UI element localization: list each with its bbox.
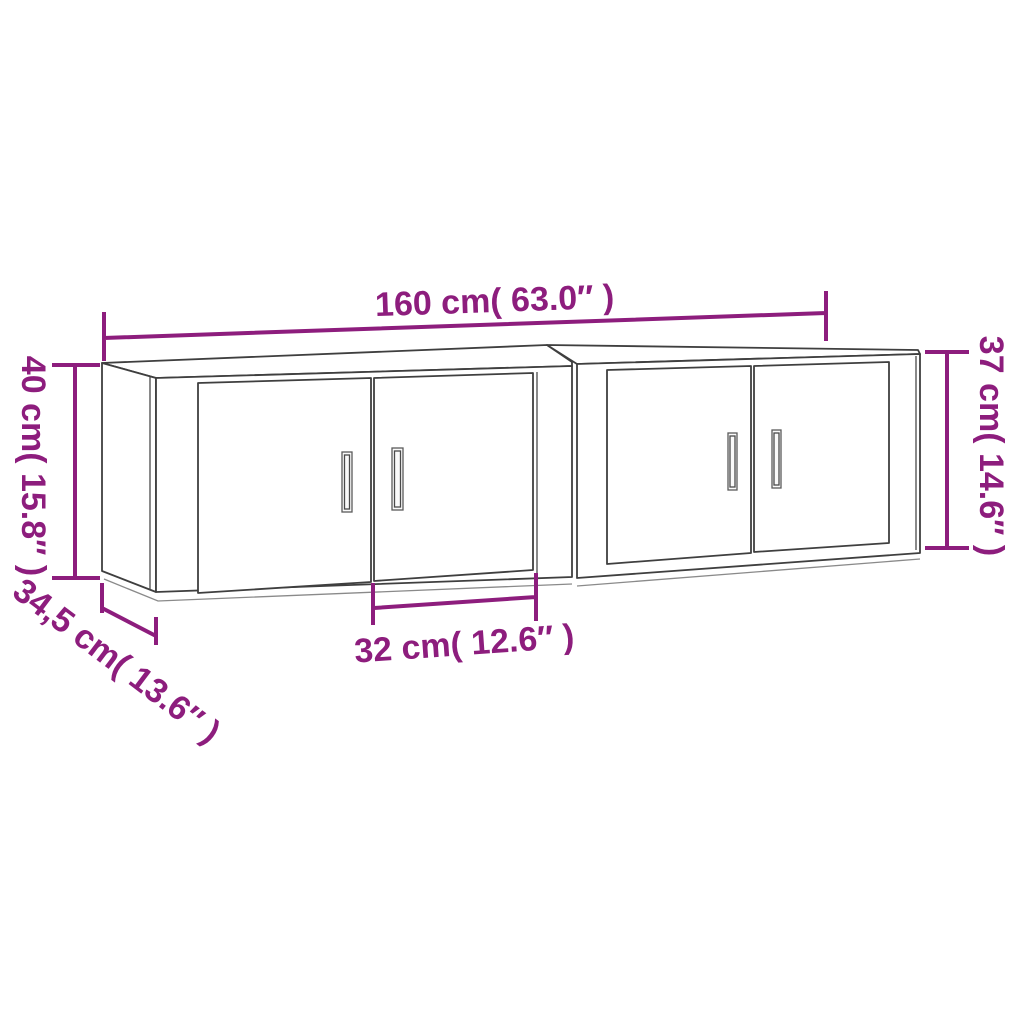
dimension-right-height: 37 cm( 14.6″ ) (925, 336, 1010, 556)
dimension-door-width: 32 cm( 12.6″ ) (353, 573, 576, 671)
dimension-label-left-height: 40 cm( 15.8″ ) (14, 356, 52, 576)
door-handle (392, 448, 403, 510)
dimension-line (925, 352, 969, 548)
dimension-left-height: 40 cm( 15.8″ ) (14, 356, 100, 578)
dimension-label-total-width: 160 cm( 63.0″ ) (374, 278, 614, 324)
left-cabinet (102, 345, 572, 601)
right-cabinet (547, 345, 920, 586)
dimension-label-door-width: 32 cm( 12.6″ ) (353, 617, 576, 670)
wall-cabinet-dimension-diagram: 160 cm( 63.0″ ) 40 cm( 15.8″ ) 37 cm( 14… (0, 0, 1024, 1024)
door-handle (728, 433, 737, 490)
dimension-diagram-page: 160 cm( 63.0″ ) 40 cm( 15.8″ ) 37 cm( 14… (0, 0, 1024, 1024)
dimension-depth: 34,5 cm( 13.6″ ) (6, 571, 228, 751)
left-cabinet-side-panel (102, 363, 156, 592)
door-handle (772, 430, 781, 488)
dimension-label-right-height: 37 cm( 14.6″ ) (972, 336, 1010, 556)
door-handle (342, 452, 352, 512)
dimension-label-depth: 34,5 cm( 13.6″ ) (6, 571, 228, 751)
dimension-line (52, 365, 100, 578)
